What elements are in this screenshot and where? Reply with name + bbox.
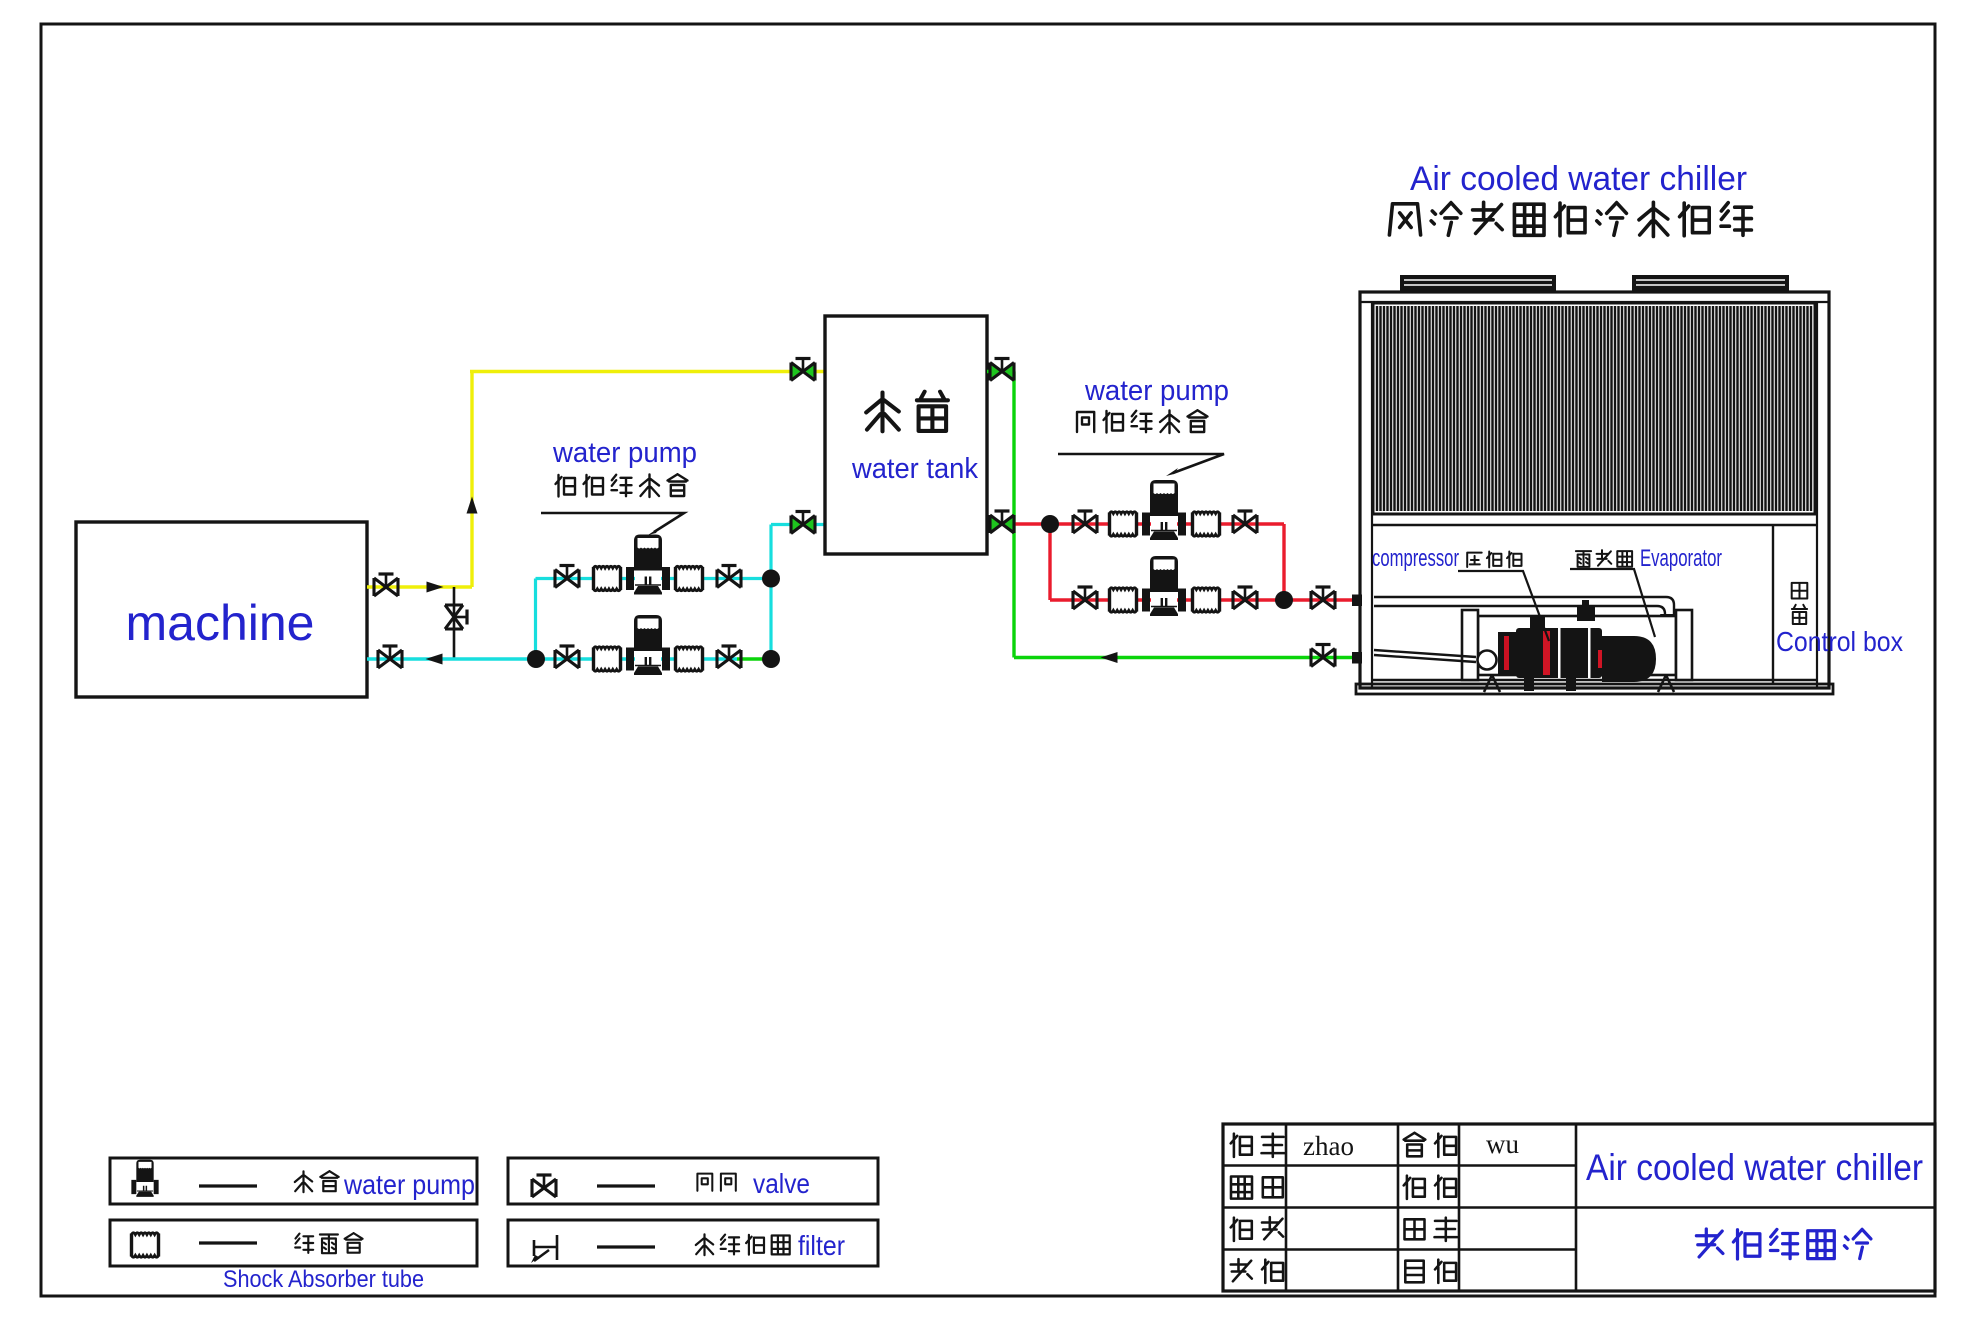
svg-text:zhao: zhao (1303, 1131, 1354, 1161)
svg-text:filter: filter (798, 1230, 845, 1261)
svg-text:Air cooled water chiller: Air cooled water chiller (1586, 1147, 1923, 1188)
svg-text:water pump: water pump (343, 1169, 475, 1200)
svg-text:machine: machine (126, 595, 315, 651)
svg-text:compressor: compressor (1372, 545, 1459, 572)
svg-text:wu: wu (1486, 1129, 1519, 1159)
svg-text:water pump: water pump (552, 437, 697, 469)
svg-text:water pump: water pump (1084, 375, 1229, 407)
svg-text:Air cooled water chiller: Air cooled water chiller (1410, 160, 1747, 198)
svg-text:water tank: water tank (851, 453, 978, 485)
svg-text:Evaporator: Evaporator (1640, 545, 1722, 572)
svg-text:valve: valve (753, 1168, 810, 1199)
svg-text:Control box: Control box (1776, 626, 1903, 657)
svg-text:Shock Absorber tube: Shock Absorber tube (223, 1266, 424, 1293)
